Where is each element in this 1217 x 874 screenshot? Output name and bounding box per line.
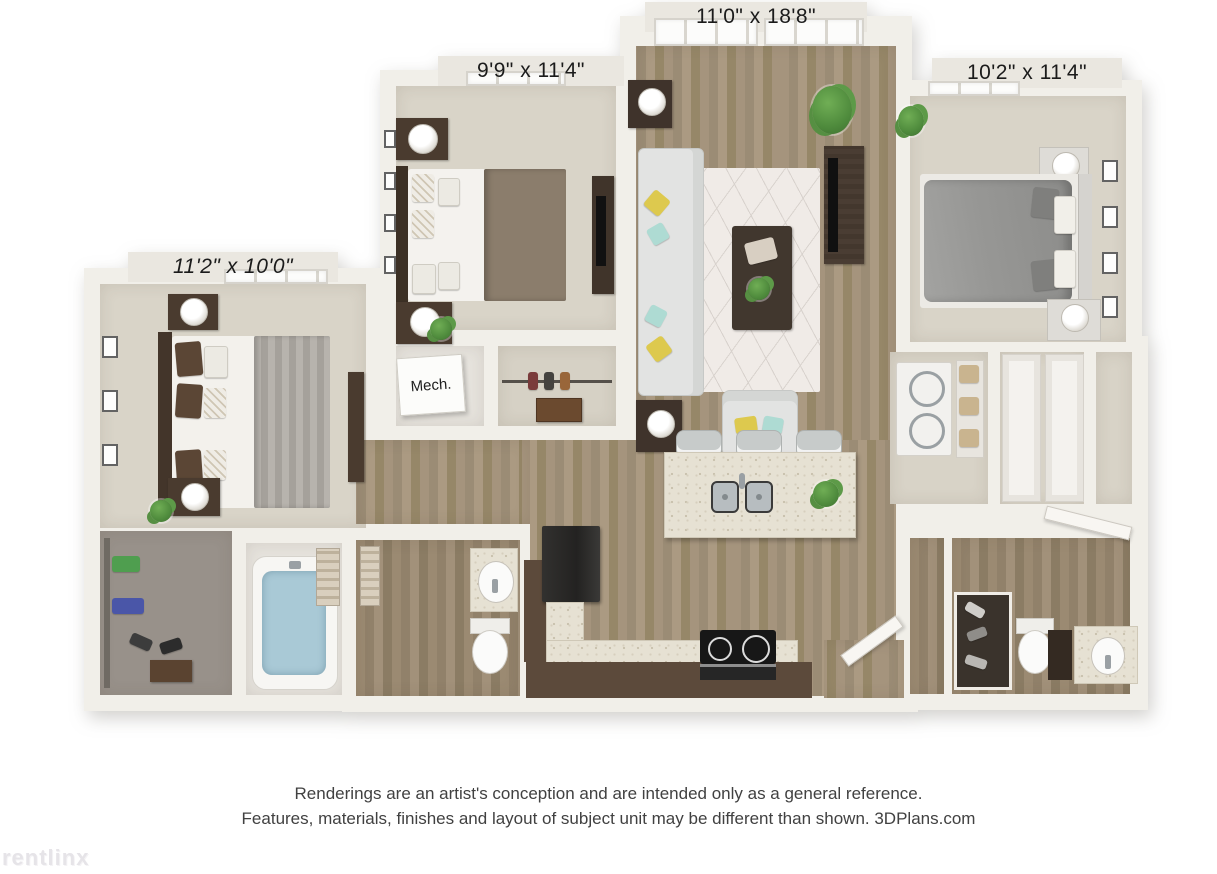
- stove-burner: [708, 637, 732, 661]
- page: { "palette": { "wall": "#f1efe9", "carpe…: [0, 0, 1217, 874]
- floor-hallway: [356, 440, 530, 524]
- hanging-clothes-green: [112, 556, 140, 572]
- floor-entry-hall: [910, 538, 944, 694]
- hanging-clothes: [528, 372, 538, 390]
- potted-plant-large: [812, 86, 852, 134]
- wall-art-frame: [1102, 252, 1118, 274]
- coffee-table: [732, 226, 792, 330]
- shoe-closet: [954, 592, 1012, 690]
- wall-art-frame: [384, 130, 396, 148]
- shoes: [964, 601, 986, 620]
- hanging-clothes: [544, 372, 554, 390]
- coffee-table-plant: [748, 278, 770, 300]
- bed-blanket: [484, 169, 566, 301]
- floorplan-scene: Mech.: [0, 0, 1217, 874]
- bed-pillow: [204, 450, 226, 480]
- shoes: [964, 654, 988, 670]
- vanity-faucet: [492, 579, 498, 593]
- dresser: [348, 372, 364, 482]
- kitchen-island: [664, 452, 856, 538]
- wall-art-frame: [102, 336, 118, 358]
- potted-plant: [430, 318, 452, 340]
- stove-cooktop: [700, 630, 776, 664]
- sofa-pillow-yellow: [645, 335, 673, 363]
- stove-burner: [742, 635, 770, 663]
- towel-shelf: [316, 548, 340, 606]
- wall-art-frame: [102, 444, 118, 466]
- table-lamp: [647, 410, 675, 438]
- vanity-2: [1074, 626, 1138, 684]
- storage-basket: [959, 397, 979, 415]
- mech-room-label: Mech.: [410, 375, 452, 395]
- refrigerator: [542, 526, 600, 602]
- wall-art-frame: [384, 214, 396, 232]
- bed-pillow: [1054, 250, 1076, 288]
- hanging-clothes: [560, 372, 570, 390]
- tv-bedroom: [596, 196, 606, 266]
- island-faucet: [739, 473, 745, 489]
- wall-art-frame: [1102, 296, 1118, 318]
- wall-art-frame: [102, 390, 118, 412]
- dimension-label-living: 11'0" x 18'8": [645, 5, 867, 29]
- dimension-label-bedroom-top-left: 9'9" x 11'4": [438, 59, 624, 83]
- wall-art-frame: [384, 172, 396, 190]
- closet-rod: [502, 380, 612, 383]
- bath-cabinet: [1048, 630, 1072, 680]
- closet-rod: [104, 538, 110, 688]
- oven-front: [700, 664, 776, 680]
- storage-basket: [959, 429, 979, 447]
- bed-blanket: [254, 336, 330, 508]
- linen-closet-doors: [1002, 354, 1084, 502]
- sofa: [638, 148, 704, 396]
- bed-pillow: [438, 262, 460, 290]
- bed-pillow: [1054, 196, 1076, 234]
- bed-bedroom-top-right: [920, 174, 1092, 308]
- disclaimer: Renderings are an artist's conception an…: [0, 781, 1217, 831]
- bed-pillow: [175, 383, 203, 419]
- bed-pillow: [412, 264, 436, 294]
- sofa-pillow-teal: [644, 304, 668, 328]
- storage-basket: [959, 365, 979, 383]
- rentlinx-watermark: rentlinx: [2, 845, 89, 871]
- bed-headboard: [1078, 174, 1092, 308]
- table-lamp: [180, 298, 208, 326]
- island-sink-right: [745, 481, 773, 513]
- sofa-pillow-yellow: [643, 189, 671, 217]
- sofa-pillow-teal: [646, 222, 671, 247]
- closet-door-right: [1045, 354, 1084, 502]
- table-lamp: [181, 483, 209, 511]
- floor-right-hall: [1096, 352, 1132, 504]
- linen-shelf: [360, 546, 380, 606]
- washer-door: [909, 371, 945, 407]
- potted-plant: [898, 106, 924, 136]
- dimension-label-bedroom-top-right: 10'2" x 11'4": [932, 61, 1122, 85]
- wall-art-frame: [1102, 206, 1118, 228]
- bed-pillow: [412, 210, 434, 238]
- shoes: [966, 626, 988, 642]
- tub-faucet: [289, 561, 301, 569]
- dimension-label-bedroom-left: 11'2" x 10'0": [128, 255, 338, 279]
- bed-pillow: [175, 341, 204, 377]
- disclaimer-line-2: Features, materials, finishes and layout…: [0, 806, 1217, 831]
- dryer-door: [909, 413, 945, 449]
- bed-headboard: [396, 166, 408, 304]
- potted-plant: [150, 500, 172, 522]
- bed-pillow: [204, 346, 228, 378]
- disclaimer-line-1: Renderings are an artist's conception an…: [0, 781, 1217, 806]
- toilet: [472, 630, 508, 674]
- vanity-1: [470, 548, 518, 612]
- island-plant: [813, 481, 839, 507]
- coffee-table-books: [744, 237, 778, 266]
- hanging-clothes-blue: [112, 598, 144, 614]
- laundry-shelves: [956, 360, 984, 458]
- vanity-faucet: [1105, 655, 1111, 669]
- tv-living: [828, 158, 838, 252]
- bed-bedroom-top-left: [396, 166, 566, 304]
- wall-art-frame: [384, 256, 396, 274]
- stacked-washer-dryer: [896, 362, 952, 456]
- storage-chest: [150, 660, 192, 682]
- island-sink-left: [711, 481, 739, 513]
- mech-room-box: Mech.: [396, 354, 466, 416]
- table-lamp: [638, 88, 666, 116]
- wall-art-frame: [1102, 160, 1118, 182]
- toilet: [1018, 630, 1052, 674]
- bed-pillow: [204, 388, 226, 418]
- table-lamp: [408, 124, 438, 154]
- bed-pillow: [438, 178, 460, 206]
- bed-pillow: [412, 174, 434, 202]
- closet-door-left: [1002, 354, 1041, 502]
- storage-chest: [536, 398, 582, 422]
- table-lamp: [1061, 304, 1089, 332]
